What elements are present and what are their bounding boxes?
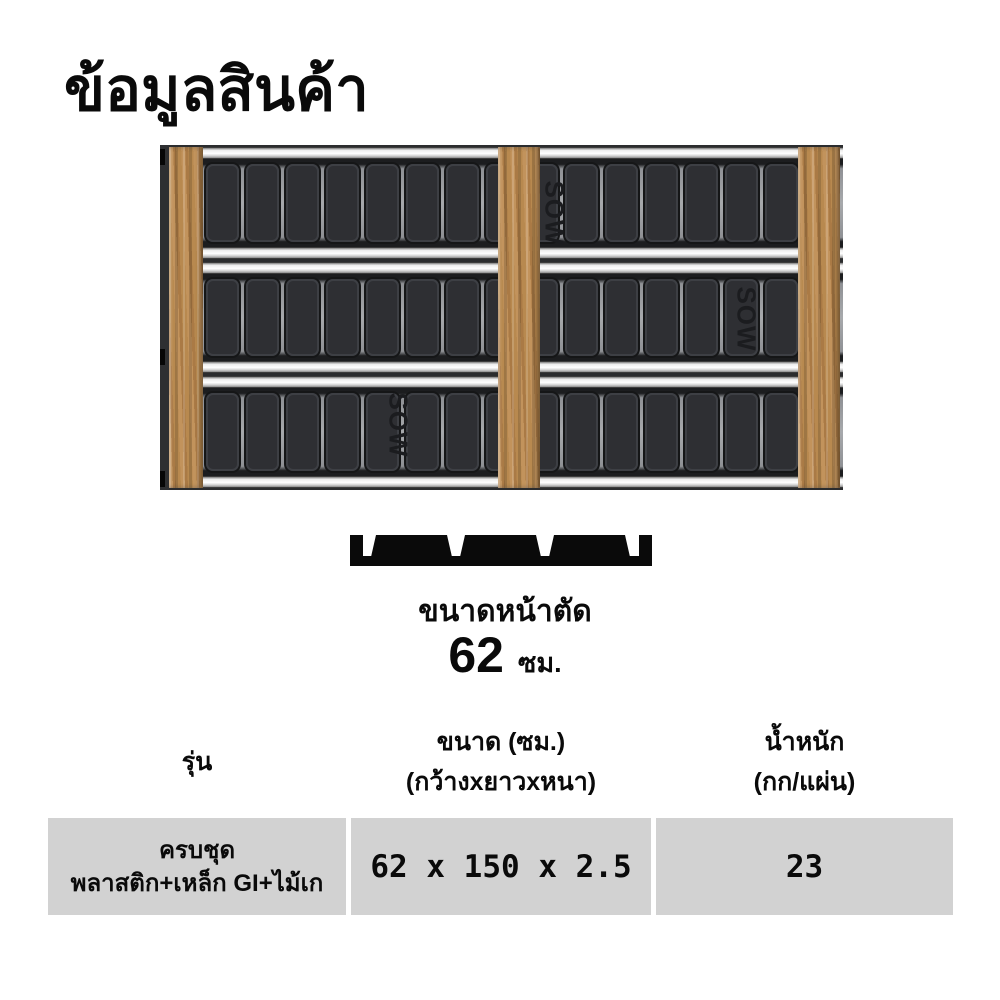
- cross-section-diagram: [350, 534, 652, 566]
- table-cell-model: ครบชุด พลาสติก+เหล็ก GI+ไม้เก: [48, 818, 346, 915]
- table-header-size: ขนาด (ซม.) (กว้างxยาวxหนา): [351, 722, 651, 802]
- table-cell-size: 62 x 150 x 2.5: [351, 818, 651, 915]
- slat: [725, 164, 758, 242]
- slat: [446, 393, 479, 471]
- slat: [406, 164, 439, 242]
- slat: [725, 393, 758, 471]
- brand-logo-text: SOW: [731, 286, 762, 351]
- slat: [206, 164, 239, 242]
- slat: [206, 279, 239, 357]
- slat: [206, 393, 239, 471]
- slat: [286, 279, 319, 357]
- slat: [366, 279, 399, 357]
- wood-plank-right: [798, 147, 840, 488]
- slat: [446, 279, 479, 357]
- slat: [286, 393, 319, 471]
- header-line: น้ำหนัก: [656, 722, 953, 762]
- brand-logo-text: SOW: [539, 180, 570, 245]
- slat: [366, 164, 399, 242]
- wood-plank-middle: [498, 147, 540, 488]
- slat: [605, 279, 638, 357]
- slat: [406, 279, 439, 357]
- table-header-model: รุ่น: [48, 722, 346, 782]
- edge-notch: [160, 149, 165, 165]
- slat: [685, 164, 718, 242]
- slat: [645, 393, 678, 471]
- header-line: รุ่น: [48, 742, 346, 782]
- slat: [565, 164, 598, 242]
- slat: [685, 393, 718, 471]
- brand-logo-text: SOW: [383, 392, 414, 457]
- slat: [645, 279, 678, 357]
- slat: [565, 393, 598, 471]
- edge-notch: [160, 349, 165, 365]
- slat: [326, 164, 359, 242]
- model-line: ครบชุด: [159, 834, 235, 867]
- size-value: 62 x 150 x 2.5: [370, 849, 631, 885]
- table-header-weight: น้ำหนัก (กก/แผ่น): [656, 722, 953, 802]
- slat: [645, 164, 678, 242]
- slat: [685, 279, 718, 357]
- slat: [765, 164, 798, 242]
- pallet-edge-strip: [160, 145, 169, 490]
- wood-plank-left: [169, 147, 203, 488]
- slat: [286, 164, 319, 242]
- slat: [605, 164, 638, 242]
- cross-section-unit: ซม.: [518, 648, 562, 678]
- slat: [565, 279, 598, 357]
- edge-notch: [160, 471, 165, 487]
- slat: [246, 164, 279, 242]
- model-line: พลาสติก+เหล็ก GI+ไม้เก: [71, 867, 324, 900]
- cross-section-dimension: 62ซม.: [355, 626, 655, 684]
- header-line: ขนาด (ซม.): [351, 722, 651, 762]
- product-image: SOW SOW SOW: [160, 145, 843, 490]
- slat: [246, 393, 279, 471]
- slat: [446, 164, 479, 242]
- slat: [326, 279, 359, 357]
- cross-section-value: 62: [448, 627, 504, 683]
- header-line: (กว้างxยาวxหนา): [351, 762, 651, 802]
- table-cell-weight: 23: [656, 818, 953, 915]
- weight-value: 23: [786, 849, 823, 885]
- slat: [605, 393, 638, 471]
- slat: [246, 279, 279, 357]
- slat: [765, 393, 798, 471]
- product-info-page: ข้อมูลสินค้า SOW SOW SOW: [0, 0, 1000, 1000]
- slat: [326, 393, 359, 471]
- header-line: (กก/แผ่น): [656, 762, 953, 802]
- page-title: ข้อมูลสินค้า: [64, 42, 369, 137]
- slat: [765, 279, 798, 357]
